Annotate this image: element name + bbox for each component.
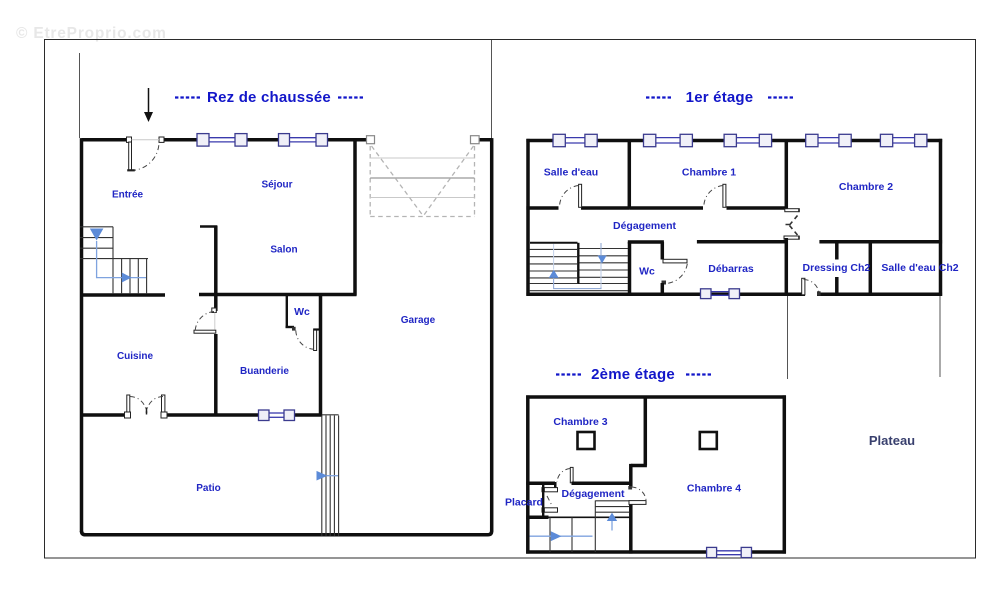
svg-text:Patio: Patio — [196, 483, 220, 494]
svg-text:Chambre 4: Chambre 4 — [687, 483, 741, 495]
svg-text:Wc: Wc — [639, 266, 655, 278]
svg-text:Salle d'eau Ch2: Salle d'eau Ch2 — [881, 262, 958, 274]
svg-text:Salle d'eau: Salle d'eau — [544, 167, 598, 179]
svg-text:Rez de chaussée: Rez de chaussée — [207, 89, 331, 106]
svg-text:Chambre 1: Chambre 1 — [682, 167, 736, 179]
svg-text:Buanderie: Buanderie — [240, 366, 289, 377]
svg-text:Séjour: Séjour — [261, 180, 292, 191]
svg-text:Dégagement: Dégagement — [561, 488, 625, 500]
svg-text:Salon: Salon — [270, 245, 297, 256]
svg-text:Plateau: Plateau — [869, 433, 915, 448]
svg-text:Dégagement: Dégagement — [613, 220, 677, 232]
svg-text:Débarras: Débarras — [708, 263, 754, 275]
svg-text:Dressing Ch2: Dressing Ch2 — [803, 262, 871, 274]
svg-text:Chambre 3: Chambre 3 — [553, 416, 607, 428]
svg-text:1er étage: 1er étage — [686, 89, 754, 106]
svg-text:Garage: Garage — [401, 315, 436, 326]
svg-text:Wc: Wc — [294, 306, 310, 318]
svg-text:Placard: Placard — [505, 497, 543, 509]
svg-text:Cuisine: Cuisine — [117, 351, 154, 362]
svg-text:2ème étage: 2ème étage — [591, 366, 675, 383]
svg-text:Entrée: Entrée — [112, 190, 144, 201]
svg-text:Chambre 2: Chambre 2 — [839, 181, 893, 193]
